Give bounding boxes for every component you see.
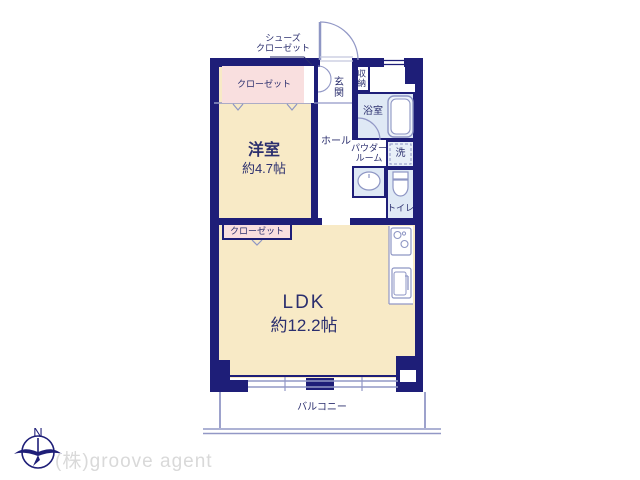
bottomright-notch — [400, 370, 416, 382]
toilet-bowl-icon — [393, 172, 408, 196]
company-name: (株)groove agent — [55, 446, 213, 473]
entrance-label: 玄関 — [331, 70, 343, 104]
stove-icon — [391, 228, 411, 255]
bedroom-closet-label: クローゼット — [222, 79, 306, 89]
hall-ldk-doorway — [322, 218, 350, 225]
toilet-label: トイレ — [386, 203, 415, 213]
washbasin-icon — [358, 172, 380, 190]
powder-room-label: パウダー ルーム — [348, 143, 390, 164]
bathtub-icon — [388, 96, 413, 137]
floor-plan: N シューズ クローゼット クローゼット 玄関 収納 浴室 ホール パウダー ル… — [0, 0, 640, 480]
shoes-closet-label: シューズ クローゼット — [238, 33, 328, 54]
balcony-label: バルコニー — [252, 402, 392, 414]
ldk-closet-label: クローゼット — [222, 226, 292, 236]
bathroom-label: 浴室 — [358, 106, 388, 118]
storage-label: 収納 — [356, 65, 366, 91]
kitchen-sink-icon — [392, 268, 411, 298]
western-room-label: 洋室 約4.7帖 — [216, 142, 312, 177]
laundry-label: 洗 — [386, 148, 415, 160]
compass-north-label: N — [33, 425, 42, 440]
bathroom-door-arc-icon — [358, 118, 380, 140]
ldk-label: LDK 約12.2帖 — [224, 292, 384, 335]
